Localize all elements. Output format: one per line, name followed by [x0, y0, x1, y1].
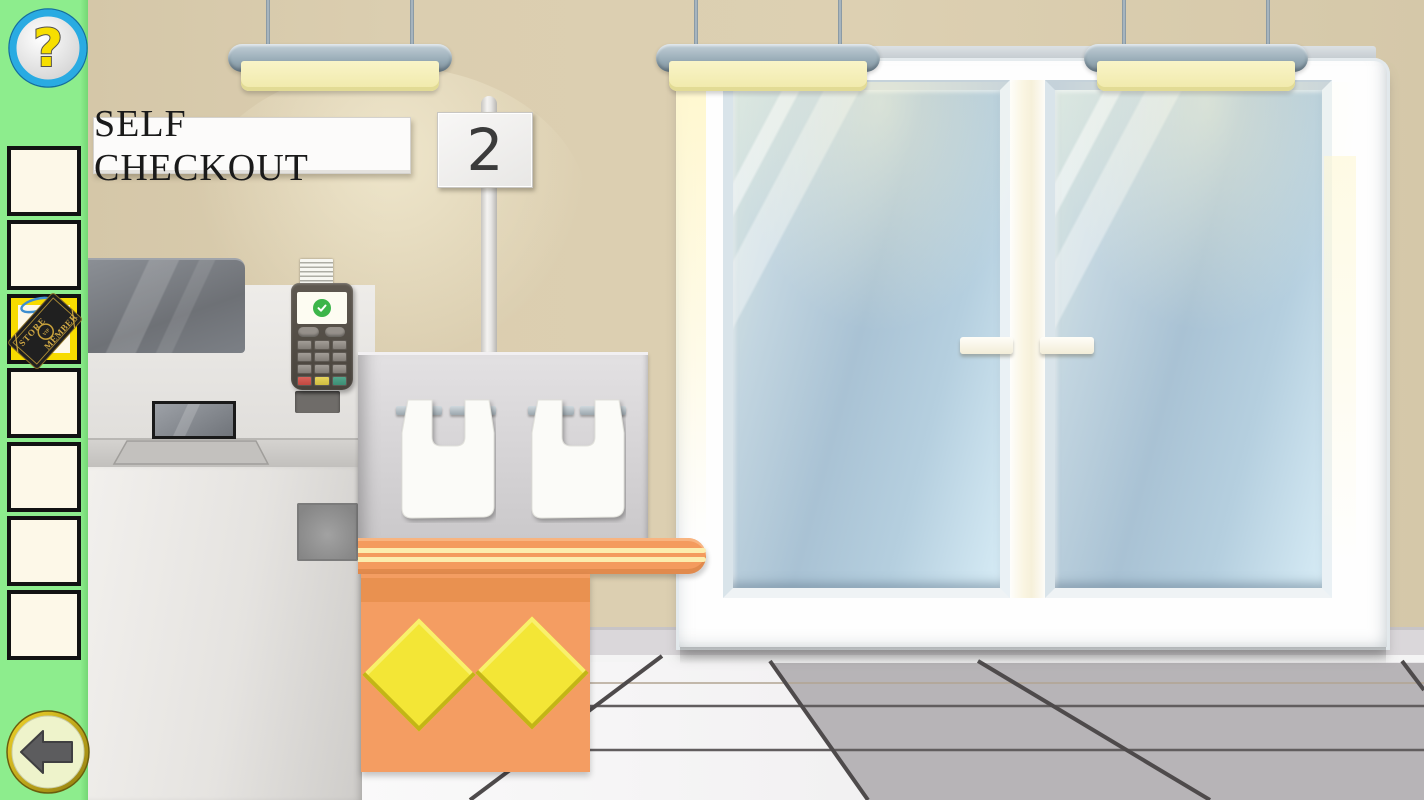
terminal-button-left — [298, 327, 319, 337]
payment-terminal[interactable] — [288, 258, 356, 392]
question-mark-icon: ? — [33, 19, 63, 79]
inventory-slot-6[interactable] — [7, 516, 81, 586]
kiosk-small-screen[interactable] — [152, 401, 236, 439]
door-handle-left[interactable] — [960, 337, 1013, 354]
terminal-screen — [297, 292, 347, 324]
inventory-slots: STORE VIP MEMBER — [7, 146, 81, 664]
terminal-button-right — [325, 327, 345, 337]
diamond-decoration-right — [475, 616, 588, 729]
back-button[interactable] — [4, 708, 92, 796]
key-clear — [314, 376, 329, 386]
countertop — [358, 538, 706, 574]
diamond-decoration-left — [362, 618, 475, 731]
counter-band — [361, 578, 590, 602]
help-button[interactable]: ? — [6, 6, 90, 90]
lane-number-sign: 2 — [437, 112, 533, 188]
door-handle-right[interactable] — [1040, 337, 1094, 354]
store-vip-member-tag[interactable]: STORE VIP MEMBER — [11, 298, 77, 360]
inventory-slot-5[interactable] — [7, 442, 81, 512]
key-enter — [332, 376, 347, 386]
checkout-monitor[interactable] — [88, 258, 245, 353]
countertop-stripe — [358, 557, 706, 562]
countertop-stripe — [358, 548, 706, 553]
inventory-slot-4[interactable] — [7, 368, 81, 438]
inventory-slot-3[interactable]: STORE VIP MEMBER — [7, 294, 81, 364]
check-circle-icon — [313, 299, 331, 317]
door-shadow — [680, 647, 1386, 664]
counter-base[interactable] — [361, 574, 590, 772]
terminal-keypad — [297, 340, 347, 386]
lamp-light-panel — [241, 61, 439, 91]
inventory-sidebar: ? STORE VIP MEMBER — [0, 0, 88, 800]
ceiling-lamp-1 — [228, 0, 452, 94]
lamp-light-panel — [1097, 61, 1295, 91]
card-slot[interactable] — [295, 391, 340, 413]
plastic-bag-right[interactable] — [531, 399, 626, 523]
game-stage: SELF CHECKOUT 2 ? — [0, 0, 1424, 800]
inventory-slot-7[interactable] — [7, 590, 81, 660]
plastic-bag-left[interactable] — [401, 399, 496, 523]
ceiling-lamp-2 — [656, 0, 880, 94]
entrance-doors — [676, 46, 1390, 664]
scanner-bed[interactable] — [88, 438, 375, 468]
lamp-light-panel — [669, 61, 867, 91]
inventory-slot-1[interactable] — [7, 146, 81, 216]
self-checkout-sign: SELF CHECKOUT — [93, 117, 411, 174]
scanner-window[interactable] — [297, 503, 358, 561]
ceiling-lamp-3 — [1084, 0, 1308, 94]
inventory-slot-2[interactable] — [7, 220, 81, 290]
key-cancel — [297, 376, 312, 386]
